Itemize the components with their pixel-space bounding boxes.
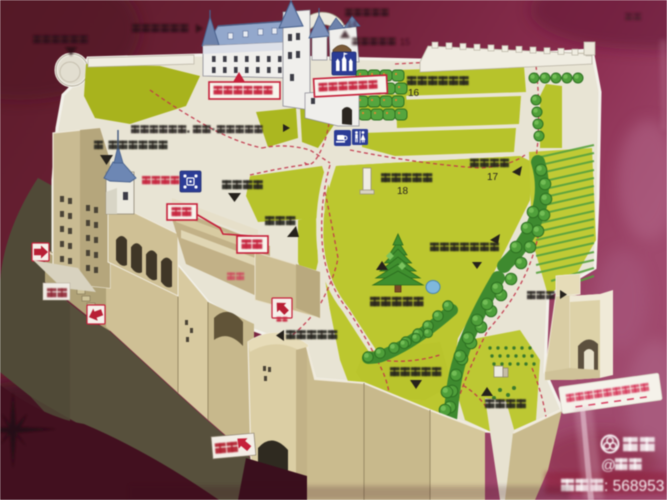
svg-text:17: 17 xyxy=(487,172,499,183)
svg-text:18: 18 xyxy=(397,186,409,197)
svg-text:@: @ xyxy=(601,458,616,474)
svg-text:16: 16 xyxy=(408,88,420,99)
svg-text:: 568953: : 568953 xyxy=(604,478,664,495)
svg-text:15: 15 xyxy=(400,37,410,47)
svg-text:14: 14 xyxy=(347,19,357,29)
